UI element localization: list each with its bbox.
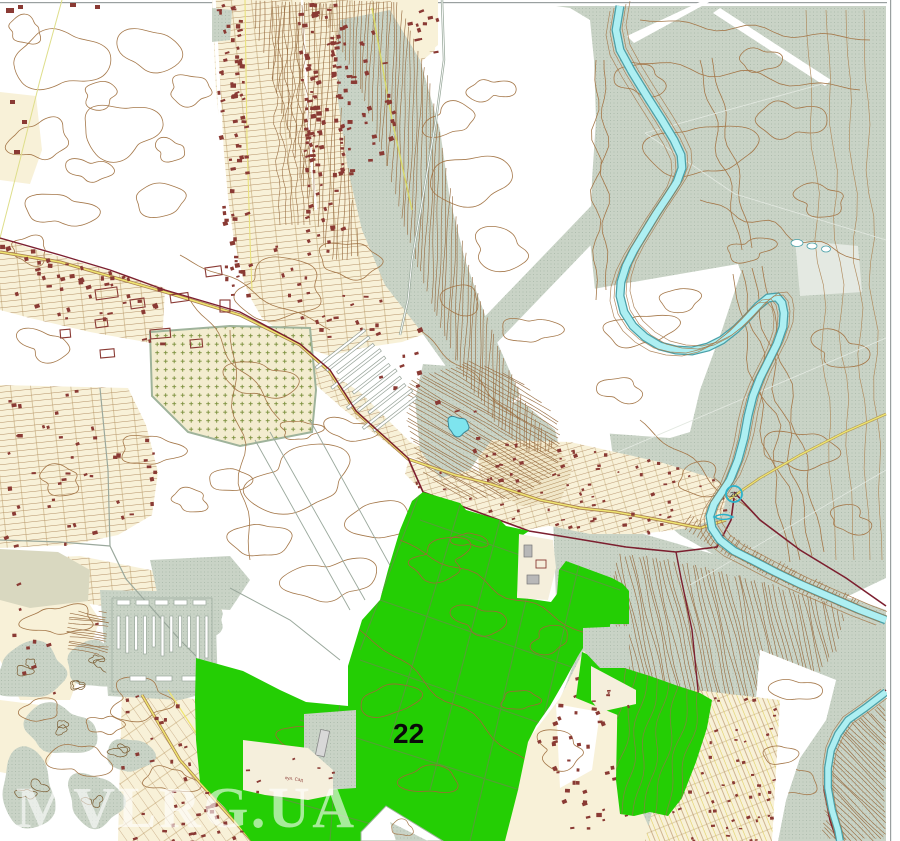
svg-text:22: 22 bbox=[393, 718, 424, 749]
svg-text:MVLRG.UA: MVLRG.UA bbox=[16, 775, 357, 840]
svg-text:26: 26 bbox=[730, 492, 738, 499]
